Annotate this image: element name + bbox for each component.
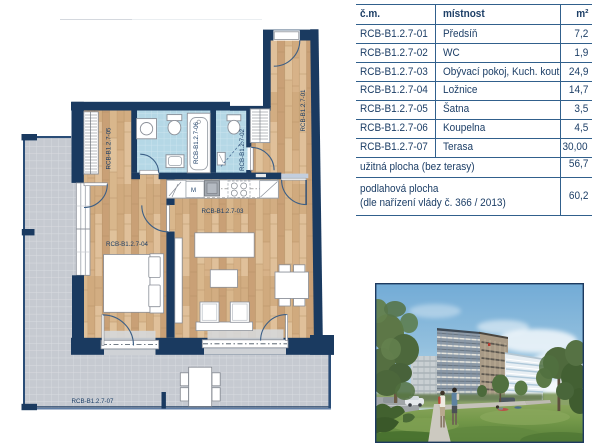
svg-text:M: M [191,188,196,194]
svg-text:RCB-B1.2.7-06: RCB-B1.2.7-06 [193,121,200,164]
svg-text:RCB-B1.2.7-02: RCB-B1.2.7-02 [239,128,246,171]
svg-text:RCB-B1.2.7-03: RCB-B1.2.7-03 [202,208,245,215]
svg-text:RCB-B1.2.7-01: RCB-B1.2.7-01 [300,89,307,132]
svg-text:RCB-B1.2.7-07: RCB-B1.2.7-07 [72,398,115,405]
svg-text:RCB-B1.2.7-04: RCB-B1.2.7-04 [106,241,149,248]
svg-text:RCB-B1.2.7-05: RCB-B1.2.7-05 [105,127,112,170]
